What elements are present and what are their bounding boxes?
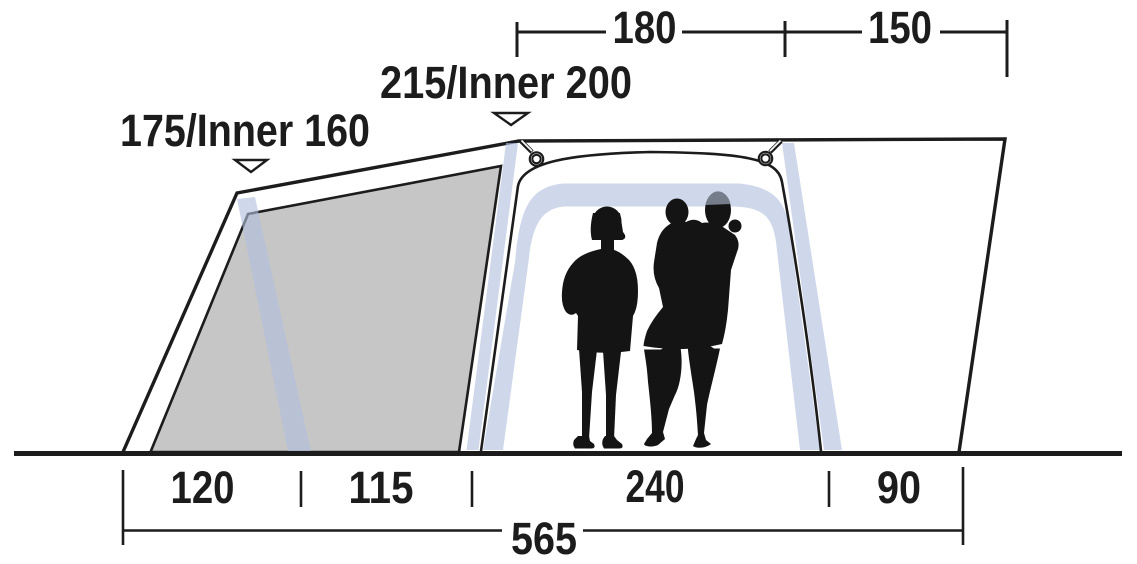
svg-text:565: 565 [511, 513, 577, 564]
svg-text:180: 180 [613, 2, 677, 53]
svg-text:115: 115 [349, 462, 414, 513]
svg-text:215/Inner 200: 215/Inner 200 [380, 57, 632, 108]
svg-text:150: 150 [868, 2, 932, 53]
svg-text:240: 240 [626, 461, 685, 512]
svg-text:120: 120 [171, 462, 235, 513]
svg-text:175/Inner 160: 175/Inner 160 [120, 105, 370, 156]
svg-text:90: 90 [877, 462, 921, 513]
